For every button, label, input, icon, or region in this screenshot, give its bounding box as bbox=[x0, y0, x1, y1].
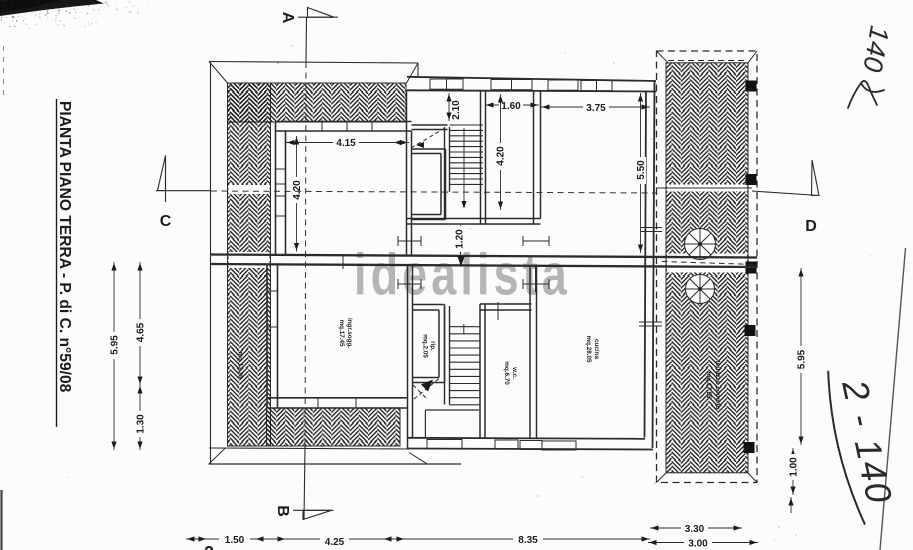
svg-text:3.30: 3.30 bbox=[685, 524, 705, 535]
svg-text:mq.28.05: mq.28.05 bbox=[585, 336, 592, 363]
svg-text:terrazzo coperto: terrazzo coperto bbox=[714, 361, 721, 410]
svg-text:mq.13.25: mq.13.25 bbox=[237, 352, 244, 379]
svg-text:5.50: 5.50 bbox=[636, 160, 647, 180]
svg-text:2: 2 bbox=[204, 543, 214, 550]
svg-text:4.20: 4.20 bbox=[496, 146, 507, 166]
svg-text:4.15: 4.15 bbox=[336, 138, 356, 149]
svg-text:cucina: cucina bbox=[593, 339, 600, 359]
svg-text:4.25: 4.25 bbox=[325, 537, 345, 548]
svg-text:mq.6.70: mq.6.70 bbox=[503, 361, 510, 385]
svg-text:mq.17.45: mq.17.45 bbox=[338, 320, 345, 347]
svg-text:mq.2.05: mq.2.05 bbox=[422, 334, 429, 358]
svg-text:1.60: 1.60 bbox=[501, 101, 521, 112]
svg-text:PIANTA PIANO TERRA - P. di C.: PIANTA PIANO TERRA - P. di C. n°59/08 bbox=[56, 101, 73, 393]
svg-text:2.10: 2.10 bbox=[451, 100, 462, 120]
svg-text:3.00: 3.00 bbox=[688, 538, 708, 549]
svg-text:rip.: rip. bbox=[429, 341, 436, 351]
svg-text:4.65: 4.65 bbox=[136, 322, 147, 342]
svg-text:idealista: idealista bbox=[354, 243, 571, 308]
svg-text:1.20: 1.20 bbox=[455, 229, 466, 249]
svg-text:1.00: 1.00 bbox=[789, 457, 800, 477]
svg-text:ingr.sogg.: ingr.sogg. bbox=[346, 318, 353, 348]
svg-text:8.35: 8.35 bbox=[518, 535, 538, 546]
svg-text:B: B bbox=[274, 505, 291, 517]
svg-text:w.c.: w.c. bbox=[511, 366, 518, 379]
svg-text:5.95: 5.95 bbox=[110, 335, 121, 355]
svg-text:D: D bbox=[805, 218, 817, 235]
svg-text:A: A bbox=[279, 12, 296, 24]
svg-text:mq.17.55: mq.17.55 bbox=[705, 372, 712, 399]
svg-text:3.75: 3.75 bbox=[586, 103, 606, 114]
svg-text:C: C bbox=[160, 213, 172, 230]
svg-text:1.30: 1.30 bbox=[136, 414, 147, 434]
svg-text:5.95: 5.95 bbox=[797, 349, 808, 369]
svg-text:1.50: 1.50 bbox=[225, 535, 245, 546]
svg-text:4.20: 4.20 bbox=[292, 180, 303, 200]
